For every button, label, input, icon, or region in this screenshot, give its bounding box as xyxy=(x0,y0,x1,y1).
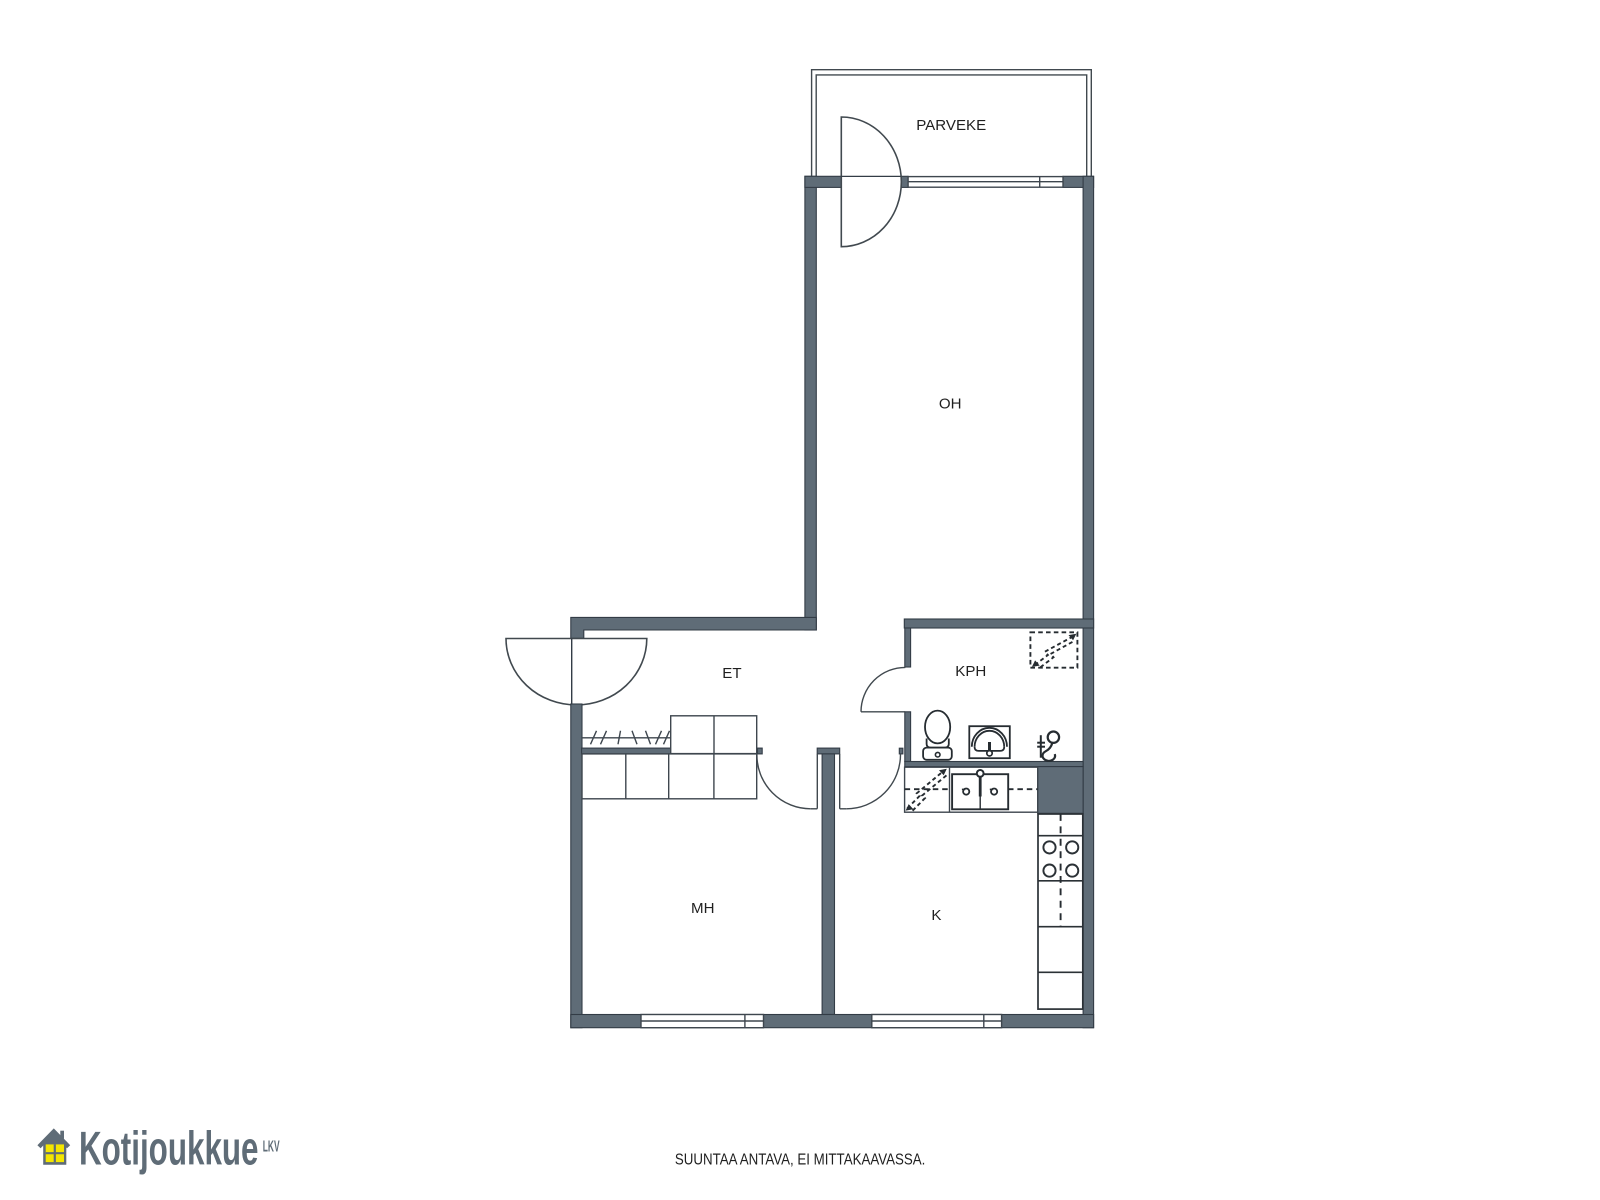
svg-text:Kotijoukkue: Kotijoukkue xyxy=(79,1122,259,1175)
svg-text:ET: ET xyxy=(722,665,741,682)
svg-text:SUUNTAA ANTAVA, EI MITTAKAAVAS: SUUNTAA ANTAVA, EI MITTAKAAVASSA. xyxy=(675,1151,925,1168)
svg-text:OH: OH xyxy=(939,396,962,413)
svg-text:LKV: LKV xyxy=(263,1138,280,1155)
svg-text:K: K xyxy=(931,907,941,924)
svg-text:MH: MH xyxy=(691,900,714,917)
svg-text:PARVEKE: PARVEKE xyxy=(916,117,986,134)
svg-text:KPH: KPH xyxy=(955,663,986,680)
